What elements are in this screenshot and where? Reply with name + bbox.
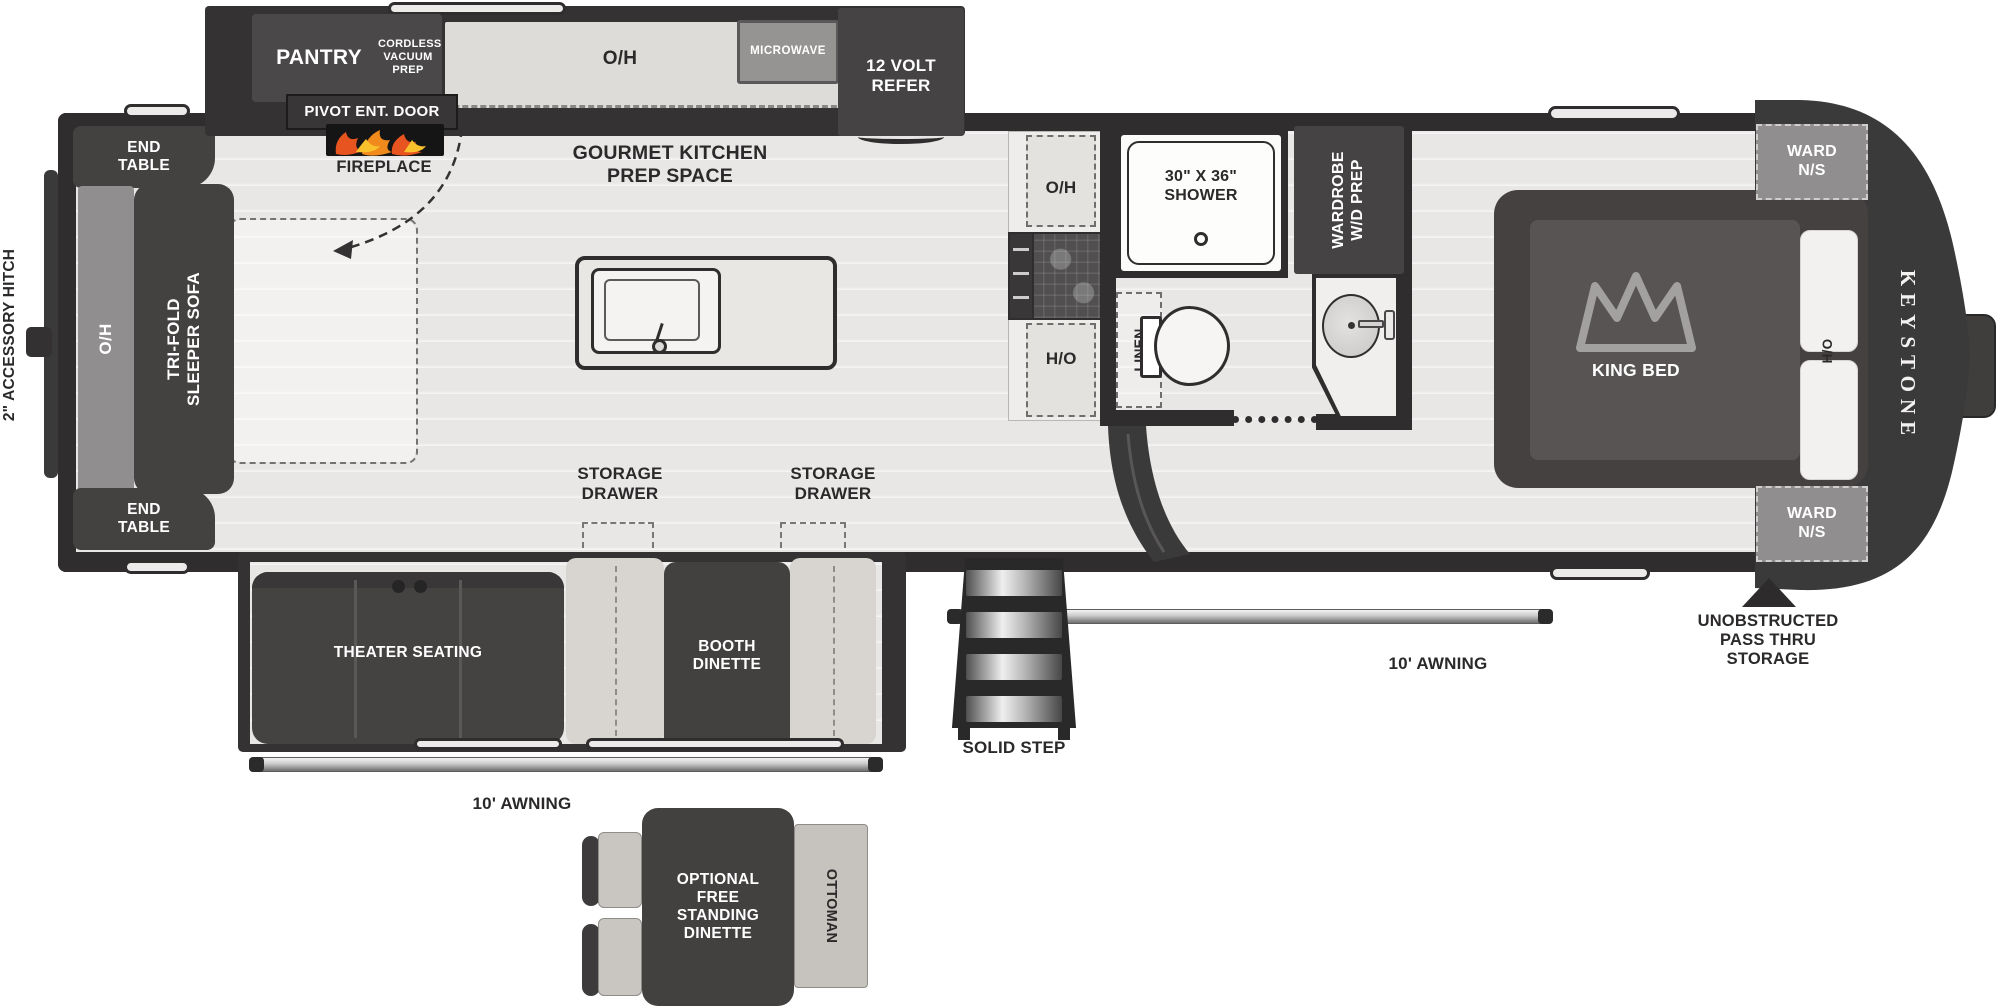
storage-drawer-left	[582, 522, 654, 548]
rear-top-window	[124, 104, 190, 118]
pass-thru-arrow-icon	[1742, 578, 1796, 607]
floorplan-canvas: 2" ACCESSORY HITCH END TABLE O/H TRI-FOL…	[0, 0, 2000, 1007]
sofa-label: TRI-FOLD SLEEPER SOFA	[164, 269, 203, 409]
wardrobe-label-wrap: WARDROBE W/D PREP	[1299, 125, 1399, 275]
theater-seating-label: THEATER SEATING	[252, 644, 564, 662]
refer-base-arc	[858, 130, 944, 144]
cupholder-icon	[392, 580, 405, 593]
cordless-vacuum-label: CORDLESS VACUUM PREP	[378, 38, 438, 76]
crown-icon	[1570, 268, 1702, 360]
awning-left-label: 10' AWNING	[452, 794, 592, 814]
oh-counter-bottom	[1026, 323, 1096, 417]
front-bottom-handle	[1550, 566, 1650, 580]
sink-faucet-icon	[1358, 320, 1384, 328]
shower-drain-icon	[1194, 232, 1208, 246]
dinette-chair-2	[598, 918, 642, 996]
optional-dinette-table: OPTIONAL FREE STANDING DINETTE	[642, 808, 794, 1006]
wardrobe-label: WARDROBE W/D PREP	[1330, 148, 1367, 252]
end-table-bottom-label: END TABLE	[106, 501, 182, 537]
storage-drawer-left-label: STORAGE DRAWER	[562, 464, 678, 503]
theater-seating: THEATER SEATING	[252, 572, 564, 744]
ward-ns-bottom: WARD N/S	[1756, 486, 1868, 562]
door-swing-arc	[300, 118, 500, 268]
refrigerator: 12 VOLT REFER	[838, 8, 964, 136]
oh-kitchen-label: O/H	[550, 48, 690, 70]
end-table-top-label: END TABLE	[106, 139, 182, 175]
sink-basin	[604, 279, 700, 341]
king-bed-label: KING BED	[1584, 360, 1688, 380]
optional-dinette-label: OPTIONAL FREE STANDING DINETTE	[663, 871, 773, 943]
ward-ns-bottom-label: WARD N/S	[1779, 505, 1845, 542]
storage-drawer-right-label: STORAGE DRAWER	[775, 464, 891, 503]
slide-bottom-window-left	[414, 738, 562, 750]
brand-label: KEYSTONE	[1896, 270, 1921, 442]
rear-hitch-pin	[26, 327, 52, 357]
pantry-cabinet: PANTRY CORDLESS VACUUM PREP	[252, 14, 442, 102]
solid-step	[948, 558, 1080, 728]
shower: 30" X 36" SHOWER	[1114, 128, 1288, 278]
kitchen-island	[575, 256, 837, 370]
dinette-chair-1	[598, 832, 642, 908]
ward-ns-top-label: WARD N/S	[1779, 143, 1845, 180]
refer-label: 12 VOLT REFER	[852, 56, 950, 95]
oh-counter-top-label: O/H	[1026, 178, 1096, 198]
oh-rear-label: O/H	[94, 279, 118, 399]
ho-label: H/O	[1817, 316, 1839, 386]
island-sink	[591, 268, 721, 354]
booth-bench-right	[790, 558, 876, 744]
pass-thru-label: UNOBSTRUCTED PASS THRU STORAGE	[1680, 612, 1856, 669]
rear-bottom-handle	[124, 560, 190, 574]
solid-step-label: SOLID STEP	[944, 738, 1084, 758]
bedroom-roof-window	[1548, 106, 1680, 121]
awning-left-bar	[252, 757, 880, 772]
rear-bumper	[44, 170, 58, 478]
sofa-label-wrap: TRI-FOLD SLEEPER SOFA	[134, 184, 234, 494]
oven-door	[1010, 234, 1034, 318]
accessory-hitch-label: 2" ACCESSORY HITCH	[1, 185, 27, 485]
cupholder-icon	[414, 580, 427, 593]
brand-label-wrap: KEYSTONE	[1893, 241, 1923, 471]
pocket-door	[1232, 416, 1318, 423]
sink-faucet-bracket	[1384, 310, 1395, 340]
range-stove	[1008, 232, 1104, 320]
booth-bench-left	[566, 558, 664, 744]
entry-door-swing	[1098, 424, 1198, 564]
booth-dinette-table: BOOTH DINETTE	[664, 562, 790, 750]
storage-drawer-right	[780, 522, 846, 548]
end-table-top: END TABLE	[73, 126, 215, 188]
sink-drain-dot	[1348, 322, 1355, 329]
door-side-slide: THEATER SEATING BOOTH DINETTE	[238, 552, 906, 752]
ottoman-label: OTTOMAN	[816, 821, 846, 991]
gourmet-kitchen-label: GOURMET KITCHEN PREP SPACE	[555, 142, 785, 187]
oh-counter-bottom-label: O/H	[1026, 348, 1096, 368]
slide-bottom-window-right	[586, 738, 844, 750]
ward-ns-top: WARD N/S	[1756, 124, 1868, 200]
end-table-bottom: END TABLE	[73, 488, 215, 550]
awning-right-label: 10' AWNING	[1368, 654, 1508, 674]
microwave-label: MICROWAVE	[750, 45, 826, 58]
microwave: MICROWAVE	[737, 20, 839, 84]
faucet-icon	[652, 339, 667, 354]
pantry-label: PANTRY	[258, 46, 380, 70]
booth-dinette-label: BOOTH DINETTE	[685, 638, 769, 674]
shower-label: 30" X 36" SHOWER	[1144, 168, 1258, 205]
